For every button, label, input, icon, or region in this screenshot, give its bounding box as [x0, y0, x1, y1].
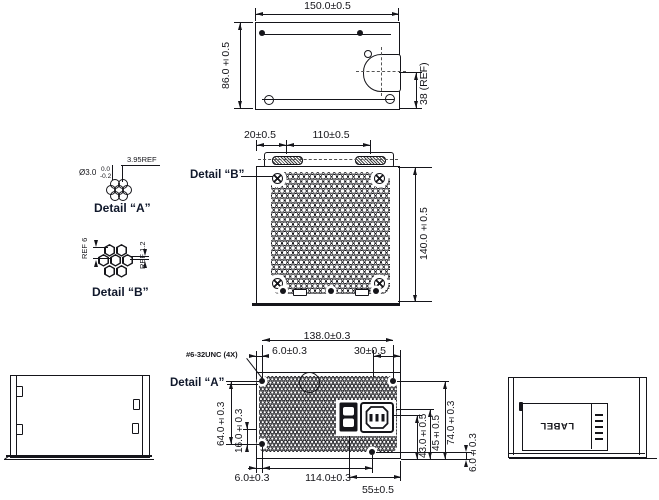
dim-arrow: [393, 354, 400, 358]
dim-arrow: [245, 445, 249, 452]
detail-a-pitch-text: 3.95REF: [127, 156, 157, 164]
rivet-dot: [280, 288, 286, 294]
side-panel-outline: [10, 375, 150, 458]
dim-text-16: 16.0±0.3: [235, 408, 245, 454]
leader-line: [121, 165, 160, 166]
dim-text-6-top: 6.0±0.3: [272, 346, 307, 358]
dim-arrow: [257, 143, 264, 147]
dim-arrow: [94, 240, 98, 247]
dim-text-depth: 140.0±0.5: [419, 196, 430, 272]
dim-arrow: [443, 382, 447, 389]
pilot-hole: [364, 50, 372, 58]
dim-text-ref38: 38 (REF): [419, 58, 430, 110]
fan-screw: [272, 173, 283, 184]
dim-text-6-bottom: 6.0±0.3: [228, 473, 276, 485]
ext-line: [349, 436, 350, 477]
rivet-dot: [373, 288, 379, 294]
ext-line: [376, 452, 472, 453]
knockout-circle: [299, 372, 320, 393]
label-clip: [519, 402, 524, 411]
dim-arrow: [363, 143, 370, 147]
dim-arrow: [262, 354, 269, 358]
dim-text-55: 55±0.5: [352, 485, 404, 497]
hex-cell: [116, 265, 127, 278]
dim-arrow: [350, 475, 357, 479]
dim-line: [240, 22, 241, 108]
lance-tab: [16, 424, 23, 435]
dim-arrow: [279, 143, 286, 147]
bracket-slot: [355, 156, 386, 165]
hex-cell: [98, 254, 109, 267]
rivet-dot: [328, 288, 334, 294]
leader-line: [112, 165, 113, 180]
bracket-slot: [272, 156, 303, 165]
dim-arrow: [394, 475, 401, 479]
dim-arrow: [365, 466, 372, 470]
dim-line: [415, 167, 416, 302]
dim-line: [466, 452, 467, 459]
centerline: [258, 159, 398, 160]
detail-b-ref-height: REF 6: [81, 235, 89, 261]
label-mark: [595, 420, 603, 422]
detail-b-callout: Detail “B”: [190, 169, 244, 181]
dim-text-height: 86.0±0.5: [221, 28, 232, 102]
seam-line: [142, 376, 143, 455]
lance-tab: [133, 399, 140, 410]
label-mark: [595, 438, 603, 440]
dim-text-45: 45±0.5: [432, 411, 442, 455]
fan-vent-mesh: [271, 172, 390, 294]
iec-inlet: [360, 402, 394, 433]
flange-line: [509, 458, 657, 459]
dim-arrow: [143, 249, 147, 256]
dim-arrow: [392, 12, 399, 16]
label-mark: [595, 432, 603, 434]
lance-tab: [132, 423, 139, 434]
lance-tab: [16, 386, 23, 397]
dim-arrow: [245, 422, 249, 429]
detail-a-callout: Detail “A”: [170, 377, 224, 389]
leader-line: [246, 358, 263, 379]
dim-line: [262, 468, 372, 469]
hex-cell: [110, 254, 121, 267]
dim-arrow: [386, 338, 393, 342]
dim-arrow: [229, 382, 233, 389]
label-mark: [595, 426, 603, 428]
dim-arrow: [238, 23, 242, 30]
screw-hole: [385, 94, 395, 104]
rocker-switch: [339, 402, 358, 432]
dim-text-64: 64.0±0.3: [217, 398, 227, 450]
centerline: [381, 47, 382, 96]
dim-arrow: [143, 261, 147, 268]
dim-arrow: [94, 260, 98, 267]
hex-cell: [116, 244, 127, 257]
dim-text-6-right: 6.0±0.3: [469, 434, 479, 472]
dim-arrow: [287, 143, 294, 147]
flange-line: [6, 455, 152, 457]
ext-line: [372, 455, 373, 473]
fan-screw: [374, 173, 385, 184]
ext-line: [401, 459, 471, 460]
seam-line: [262, 34, 391, 35]
detail-b-title: Detail “B”: [92, 285, 149, 299]
dim-arrow: [464, 460, 468, 467]
dim-arrow: [238, 101, 242, 108]
seam-line: [639, 378, 640, 455]
dim-arrow: [414, 73, 418, 80]
dim-text-width: 150.0±0.5: [285, 1, 370, 13]
ext-line: [393, 345, 394, 378]
vent-slot: [293, 289, 307, 296]
flange-line: [509, 453, 645, 455]
label-divider: [591, 404, 592, 449]
drawing-canvas: 150.0±0.5 86.0±0.5 38 (REF) 20±0.5 110±0…: [0, 0, 659, 500]
vent-hole: [118, 191, 128, 201]
dim-arrow: [229, 437, 233, 444]
ext-line: [397, 381, 449, 382]
ext-line: [400, 350, 401, 372]
hex-cell: [104, 265, 115, 278]
vent-slot: [355, 289, 369, 296]
dim-arrow: [263, 466, 270, 470]
seam-line: [513, 378, 514, 455]
dim-arrow: [464, 445, 468, 452]
dim-text-offset: 20±0.5: [238, 130, 282, 142]
dim-line: [93, 247, 108, 248]
flange-line: [252, 303, 400, 306]
screw-hole: [264, 95, 274, 105]
rivet-dot: [259, 30, 265, 36]
cable-cutout: [363, 54, 401, 92]
dim-arrow: [414, 101, 418, 108]
dim-arrow: [413, 168, 417, 175]
seam-line: [262, 99, 394, 100]
dim-line: [256, 145, 370, 146]
dim-line: [231, 381, 232, 444]
rivet-dot: [357, 30, 363, 36]
dim-text-pitch: 110±0.5: [303, 130, 359, 142]
dim-arrow: [413, 295, 417, 302]
dim-arrow: [256, 12, 263, 16]
dim-arrow: [263, 338, 270, 342]
ext-line: [370, 140, 371, 154]
detail-a-title: Detail “A”: [94, 201, 151, 215]
flange-line: [4, 459, 154, 460]
detail-a-dia-text: Ø3.0: [79, 169, 96, 178]
leader-line: [241, 176, 273, 177]
thread-note: #6-32UNC (4X): [186, 351, 238, 359]
dim-text-30: 30±0.5: [348, 346, 392, 358]
detail-a-tol-lower: -0.2: [100, 173, 111, 180]
dim-text-74: 74.0±0.3: [447, 393, 457, 453]
ext-line: [262, 345, 263, 378]
label-text: LABEL: [524, 403, 590, 449]
label-mark: [595, 414, 603, 416]
dim-line: [130, 256, 149, 257]
dim-arrow: [249, 354, 256, 358]
dim-line: [255, 14, 399, 15]
dim-arrow: [249, 466, 256, 470]
ext-line: [256, 459, 257, 473]
tapped-hole: [390, 378, 396, 384]
dim-text-138: 138.0±0.3: [292, 331, 362, 343]
